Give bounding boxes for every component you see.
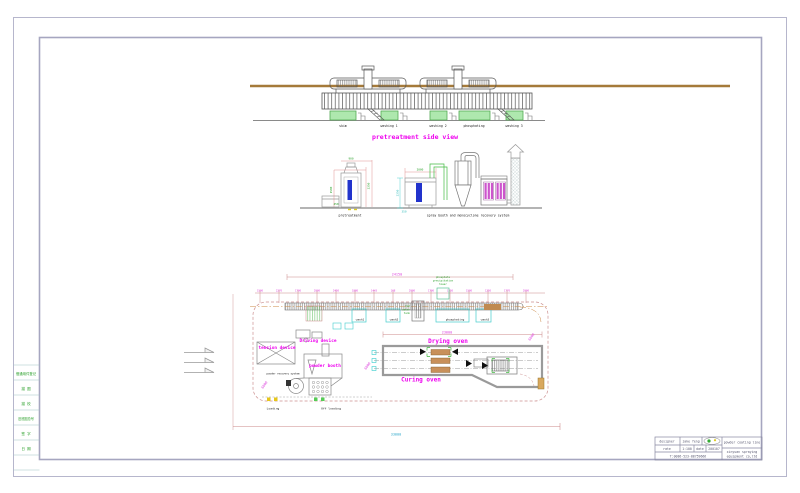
phone-number: T:0086-523-88759666 xyxy=(670,454,707,458)
phosphate-tower: phosphate precipitation tower xyxy=(433,275,454,299)
rotated-dim: 6000 xyxy=(364,362,372,371)
border-table-row: 日 期 xyxy=(21,446,31,451)
date-label: date xyxy=(696,447,704,451)
exhaust-stack-1 xyxy=(330,66,406,93)
powder-booth-label: powder booth xyxy=(309,363,341,369)
dim: 168 xyxy=(391,289,396,293)
tank-washing-2 xyxy=(430,111,447,120)
dim: 1500 xyxy=(466,289,473,293)
dim: 1770 xyxy=(504,289,511,293)
loading-station-box xyxy=(306,306,322,321)
tank-label: phosphating xyxy=(463,124,484,128)
tank-row-hatched-band xyxy=(322,93,532,109)
workpiece-bar xyxy=(416,183,422,202)
top-dimension-chain xyxy=(255,274,545,303)
rate-value: 1:100 xyxy=(682,447,692,451)
dim-label: 2000 xyxy=(417,168,424,172)
loading-label: Loading xyxy=(267,407,280,411)
dim: 2000 xyxy=(523,289,530,293)
dim: 2450 xyxy=(333,289,340,293)
company-name-line2: equipment co,ltd xyxy=(727,455,758,459)
bottom-dim-value: 33000 xyxy=(391,433,402,437)
date-value: 200107 xyxy=(708,447,720,451)
tower-label-line: precipitation xyxy=(433,279,454,283)
up-arrow-icon xyxy=(508,145,524,159)
pretreatment-detail-label: pretreatment xyxy=(338,214,361,218)
final-filter-unit xyxy=(481,176,507,205)
tank-washing-1 xyxy=(381,111,398,120)
dim: 1750 xyxy=(447,289,454,293)
drying-oven-label: Drying oven xyxy=(428,338,468,345)
tank-label: washing 3 xyxy=(505,124,522,128)
dim: 2000 xyxy=(314,289,321,293)
designer-label: designer xyxy=(659,439,674,443)
detail-views: 900 2350 1500 450 pretreatment 2000 2350… xyxy=(300,145,542,218)
exhaust-stack-detail xyxy=(507,145,524,206)
dim-label: 2350 xyxy=(395,189,399,196)
hot-tank-label-line: tank xyxy=(404,311,411,315)
workpiece-bar xyxy=(348,180,353,200)
title-block: designer jake feng rate 1:100 date 20010… xyxy=(655,437,762,460)
oven-dim: 23000 xyxy=(442,330,453,334)
powder-coating-station: Driving device tension device powder boo… xyxy=(257,330,342,395)
dim-label: 450 xyxy=(333,202,338,206)
hot-tank-label-line: hot xyxy=(405,304,410,308)
drawing-sheet[interactable]: 借通用件登记 描 图 描 校 旧底图总号 签 字 日 期 xyxy=(0,0,800,493)
plan-tank-label: phosphating xyxy=(446,318,465,322)
tank-label: skim xyxy=(339,124,347,128)
company-name-line1: xinyuan spraying xyxy=(727,450,758,454)
dim: 1250 xyxy=(485,289,492,293)
driving-device-label: Driving device xyxy=(299,338,336,344)
tank-phosphating xyxy=(459,111,490,120)
designer-value: jake feng xyxy=(682,439,699,443)
recovery-fan-motor xyxy=(286,380,291,386)
dim-label: 1500 xyxy=(329,186,333,193)
rate-label: rate xyxy=(663,447,671,451)
loading-area: Loading Off loading xyxy=(262,397,372,411)
border-table-row: 借通用件登记 xyxy=(16,371,37,376)
flow-arrows xyxy=(184,348,214,373)
ovens: 23000 xyxy=(372,330,544,389)
dim: 2270 xyxy=(276,289,283,293)
plan-tank-label: wash1 xyxy=(356,318,365,322)
burner-3 xyxy=(431,367,450,373)
product-name: powder coating line xyxy=(724,441,761,445)
powder-recovery-label: powder recovery system xyxy=(266,372,300,376)
dim-label: 350 xyxy=(401,210,406,214)
spray-recovery-detail: 2000 2350 350 xyxy=(395,145,523,218)
conveyor-chain xyxy=(250,303,548,322)
cad-canvas[interactable]: 借通用件登记 描 图 描 校 旧底图总号 签 字 日 期 xyxy=(0,0,800,493)
border-table-row: 描 图 xyxy=(21,386,31,391)
dim-label: 900 xyxy=(348,157,353,161)
tank-skim xyxy=(330,111,356,120)
spray-detail-label: spray booth and monocyclone recovery sys… xyxy=(427,214,510,218)
rotated-dim: 6000 xyxy=(528,333,536,342)
burner-2 xyxy=(431,358,450,364)
pretreatment-tanks xyxy=(330,111,523,120)
hot-tank-label-line: water xyxy=(402,308,410,312)
plan-tank-label: wash2 xyxy=(390,318,399,322)
tension-device-label: tension device xyxy=(258,345,295,351)
border-table-row: 旧底图总号 xyxy=(18,416,34,421)
offloading-label: Off loading xyxy=(321,407,341,411)
border-table-row: 签 字 xyxy=(21,431,31,436)
dim: 1443 xyxy=(371,289,378,293)
border-table: 借通用件登记 描 图 描 校 旧底图总号 签 字 日 期 xyxy=(14,365,40,470)
cyclone xyxy=(455,153,479,207)
pretreatment-side-view: skim washing 1 washing 2 phosphating was… xyxy=(250,66,730,141)
dim: 1700 xyxy=(428,289,435,293)
dim: 1500 xyxy=(257,289,264,293)
exhaust-stack-2 xyxy=(420,66,496,93)
overall-dim: 24150 xyxy=(392,272,403,276)
burner-1 xyxy=(431,350,450,356)
dim: 1700 xyxy=(295,289,302,293)
border-table-row: 描 校 xyxy=(21,401,31,406)
conveyor-drive-segment xyxy=(484,304,501,310)
dim: 2000 xyxy=(409,289,416,293)
company-logo xyxy=(704,438,720,445)
bottom-dimension: 33000 xyxy=(233,423,560,437)
tower-label-line: tower xyxy=(439,282,447,286)
rotated-dim: 6000 xyxy=(261,381,269,390)
dim-label: 2350 xyxy=(367,182,371,189)
curing-oven-label: Curing oven xyxy=(401,377,441,384)
tower-label-line: phosphate xyxy=(436,275,450,279)
side-view-title: pretreatment side view xyxy=(372,133,458,141)
plan-tank-label: wash3 xyxy=(481,318,490,322)
tank-label: washing 1 xyxy=(380,124,397,128)
tank-label: washing 2 xyxy=(429,124,446,128)
plan-view: 24150 1500 2270 1700 2000 2450 1880 1443… xyxy=(184,272,560,436)
dim: 1880 xyxy=(352,289,359,293)
